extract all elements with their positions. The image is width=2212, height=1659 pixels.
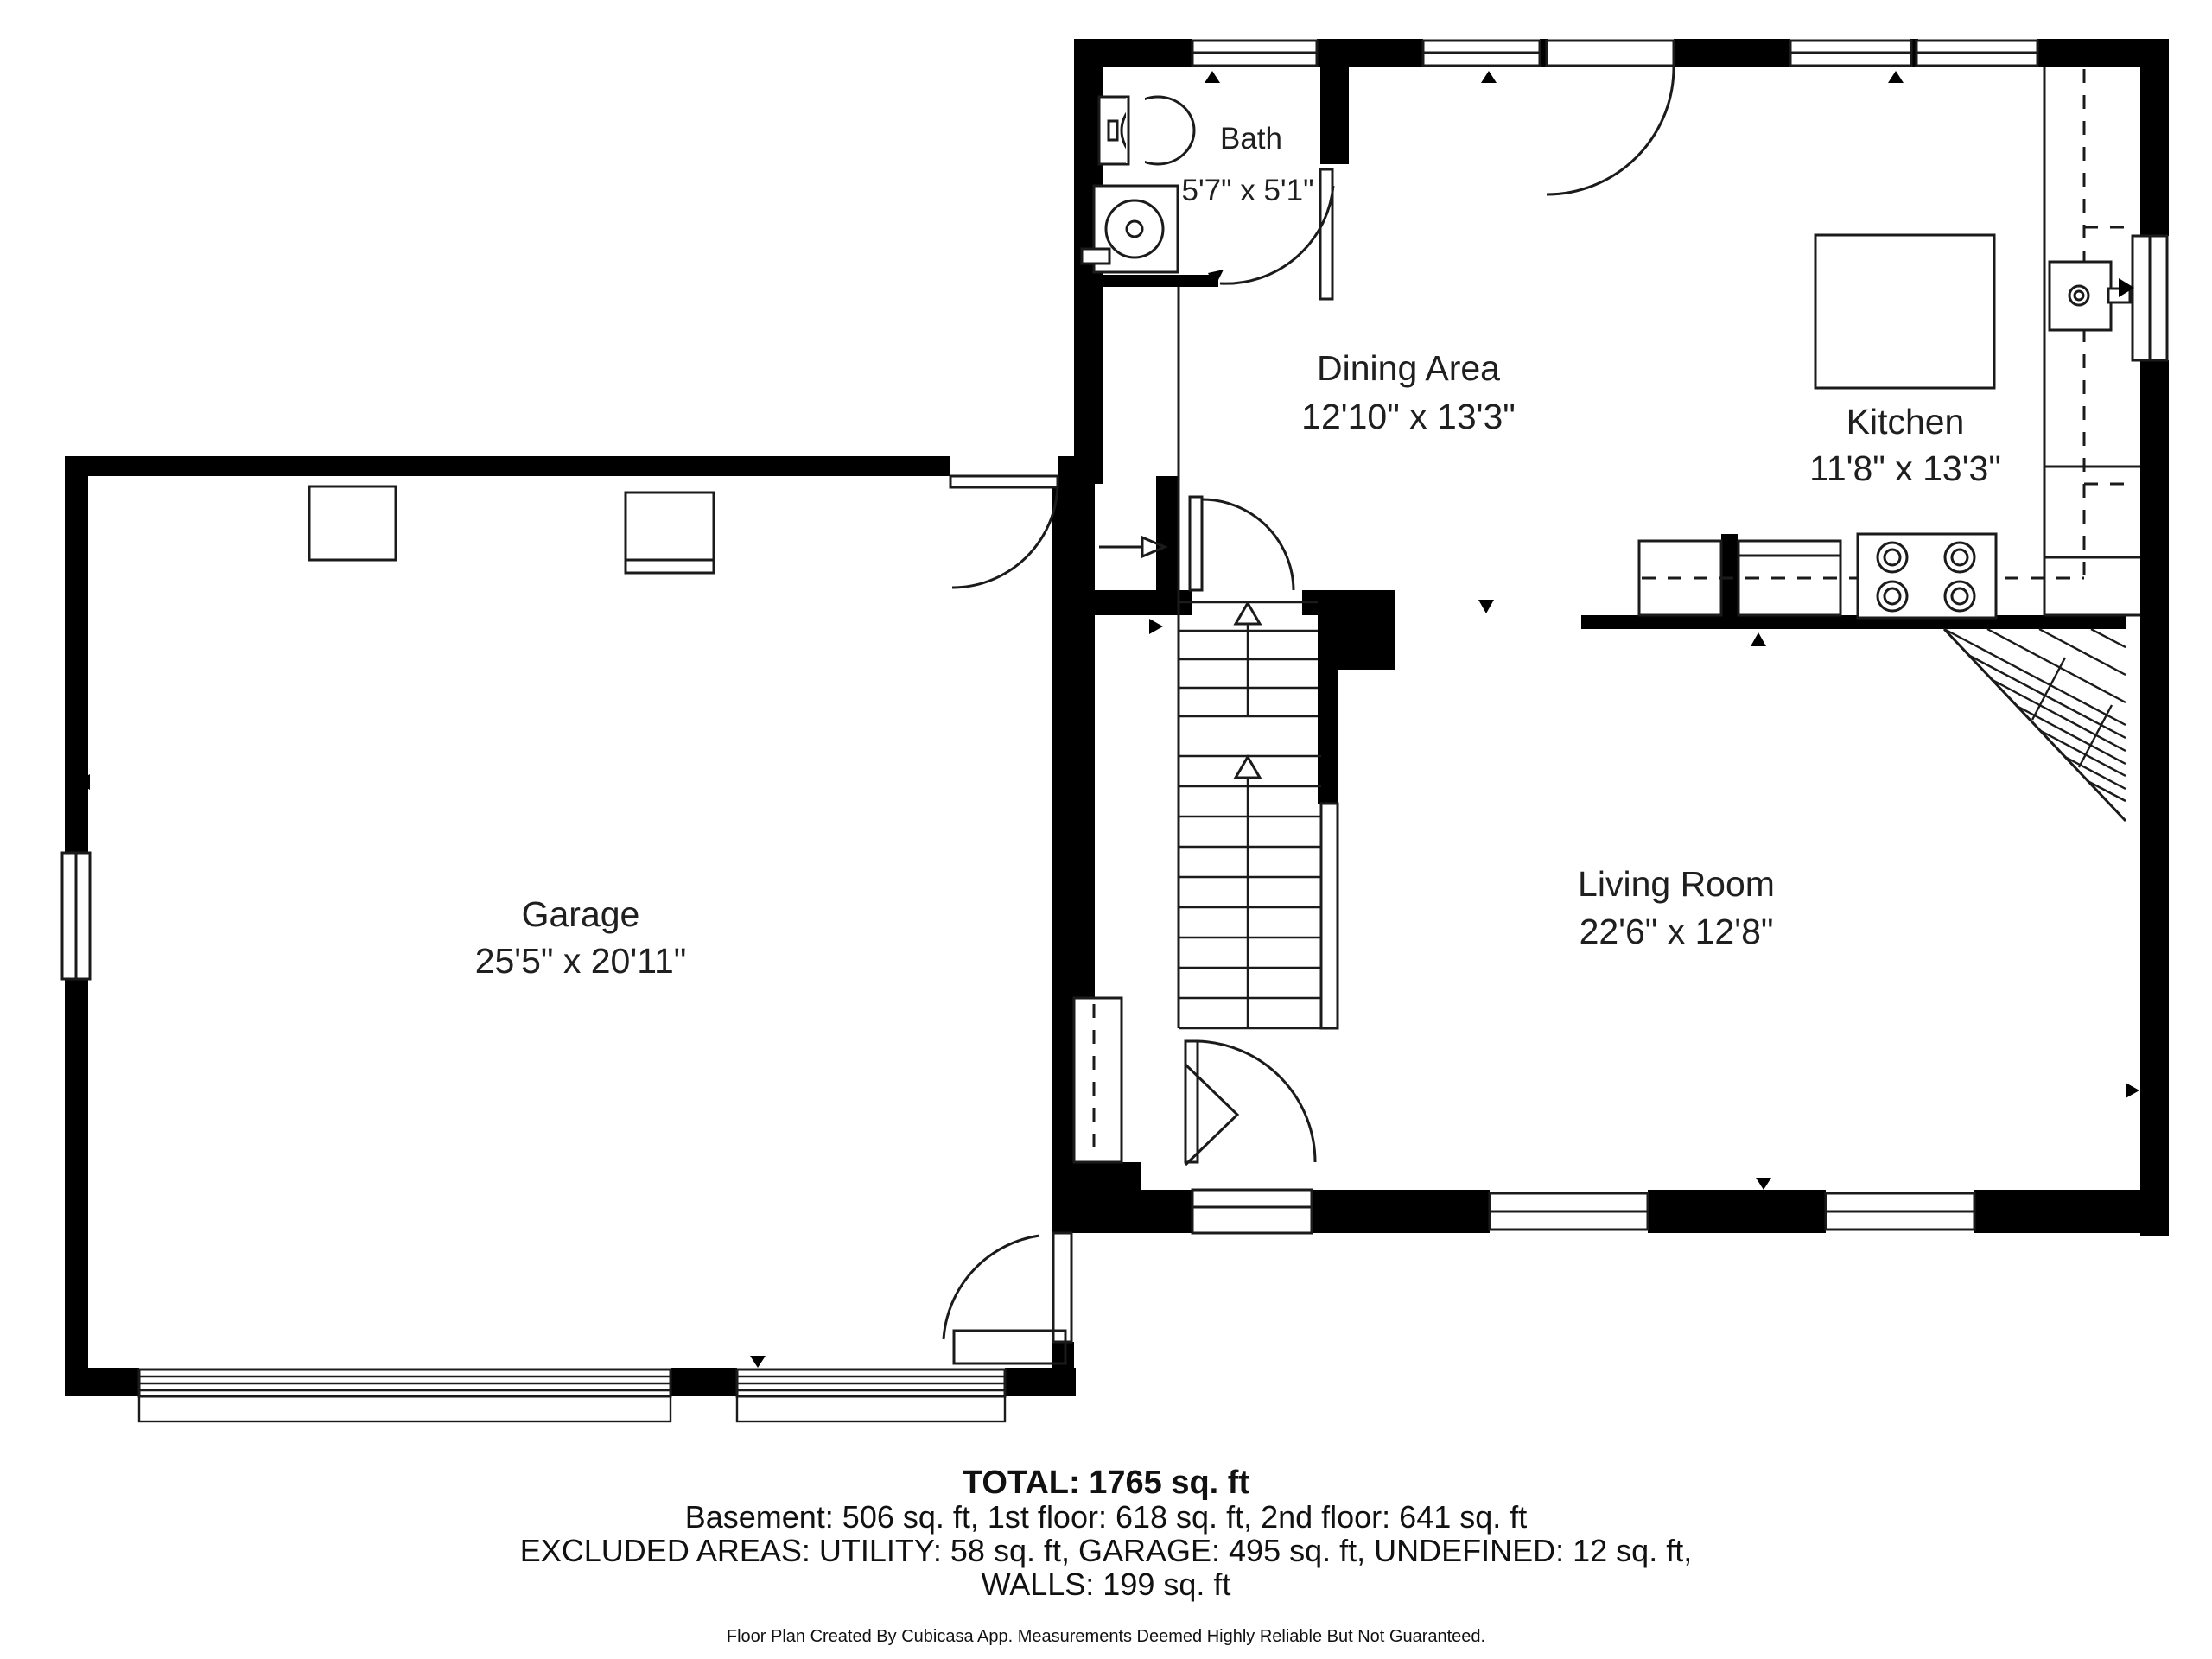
excluded-areas: EXCLUDED AREAS: UTILITY: 58 sq. ft, GARA… [0,1534,2212,1567]
bath-dims: 5'7" x 5'1" [1181,174,1313,207]
floor-areas: Basement: 506 sq. ft, 1st floor: 618 sq.… [0,1500,2212,1534]
bath-window [1192,41,1317,66]
marker-dining-window [1481,71,1497,83]
garage-step [954,1331,1065,1363]
dining-window [1423,41,1540,66]
total-area: TOTAL: 1765 sq. ft [0,1465,2212,1500]
hatched-area [1944,629,2126,821]
marker-hall [1149,619,1163,634]
marker-bath-window [1205,71,1220,83]
garage-top-door [950,476,1058,588]
top-entry-door [1547,41,1674,194]
garage-door-right [737,1370,1005,1421]
marker-living-top [1751,632,1766,646]
marker-living-right [2126,1083,2139,1098]
toilet-icon [1099,97,1194,164]
dining-label: Dining Area [1317,348,1500,388]
living-window-left [1490,1193,1648,1230]
living-dims: 22'6" x 12'8" [1580,912,1774,951]
stove-icon [1858,534,1996,618]
kitchen-dims: 11'8" x 13'3" [1809,448,2001,488]
kitchen-sink-icon [2050,262,2134,330]
stair-railing [1321,804,1338,1028]
floor-plan-page: Bath 5'7" x 5'1" Dining Area 12'10" x 13… [0,0,2212,1659]
bath-label: Bath [1220,122,1282,156]
marker-dining-living-opening [1478,600,1494,613]
kitchen-island [1815,235,1994,388]
dining-dims: 12'10" x 13'3" [1301,397,1516,436]
disclaimer: Floor Plan Created By Cubicasa App. Meas… [0,1627,2212,1647]
stair-top-door [1190,497,1294,590]
marker-kitchen-window [1888,71,1904,83]
garage-door-left [139,1370,671,1421]
entry-closet [1074,998,1122,1162]
front-door [1185,1041,1315,1233]
living-label: Living Room [1578,864,1775,904]
garage-doors [139,1370,1005,1421]
kitchen-window-right [1916,41,2037,66]
garage-dims: 25'5" x 20'11" [475,941,687,981]
garage-side-window [62,853,90,979]
walls-area: WALLS: 199 sq. ft [0,1567,2212,1601]
bath-sink-icon [1082,186,1178,272]
kitchen-label: Kitchen [1847,402,1965,442]
garage-unit-right [626,493,714,573]
kitchen-side-window [2133,236,2167,360]
room-labels: Bath 5'7" x 5'1" Dining Area 12'10" x 13… [475,122,2001,981]
garage-side-door [944,1233,1071,1342]
bath-fixtures [1082,97,1194,272]
garage-label: Garage [522,894,640,934]
garage-unit-left [309,486,396,560]
garage-equipment [309,486,714,573]
marker-garage-bottom [750,1356,766,1368]
kitchen-window-left [1790,41,1911,66]
kitchen-fixtures [1639,67,2140,618]
area-summary: TOTAL: 1765 sq. ft Basement: 506 sq. ft,… [0,1465,2212,1647]
floor-plan-drawing: Bath 5'7" x 5'1" Dining Area 12'10" x 13… [0,0,2212,1659]
marker-living-bottom [1756,1178,1771,1190]
living-window-right [1826,1193,1974,1230]
